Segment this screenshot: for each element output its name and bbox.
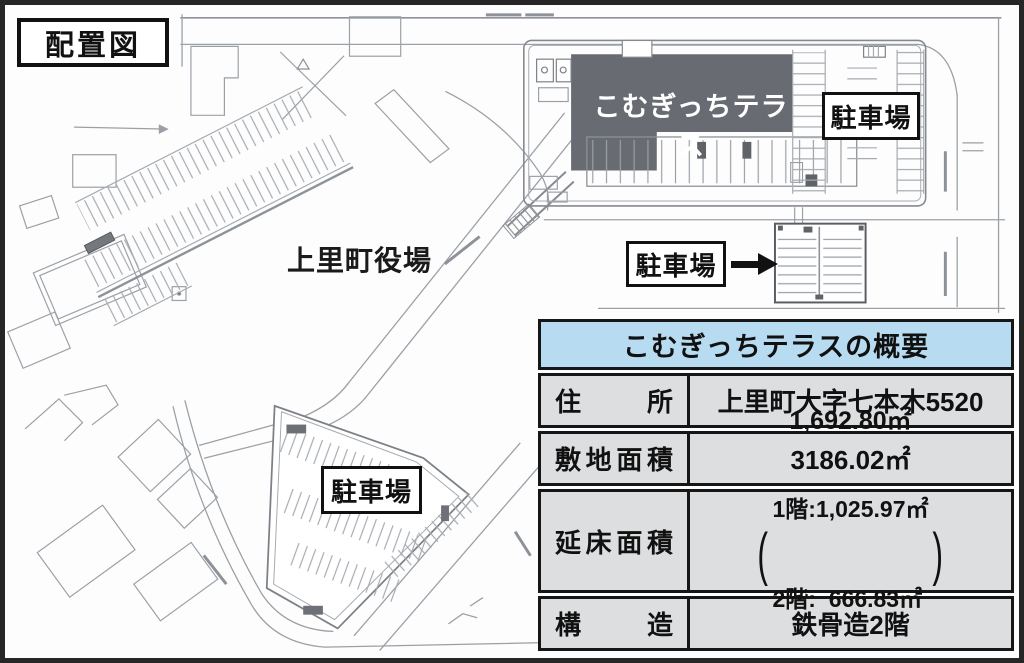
paren-close: ) xyxy=(933,530,944,579)
table-row-structure: 構 造 鉄骨造2階 xyxy=(538,596,1014,651)
overview-table-title: こむぎっちテラスの概要 xyxy=(538,319,1014,370)
detached-parking-lot xyxy=(775,224,866,303)
parking-label-south: 駐車場 xyxy=(321,466,422,514)
floor1-area: 1階:1,025.97㎡ xyxy=(773,495,929,525)
address-label-cell: 住 所 xyxy=(541,376,690,425)
table-row-floor-area: 延床面積 1,692.80㎡ ( 1階:1,025.97㎡ 2階: 666.83… xyxy=(538,489,1014,593)
page-frame: 配置図 こむぎっちテラス 駐車場 上里町役場 駐車場 駐車場 こむぎっちテラスの… xyxy=(0,0,1024,663)
overview-table: こむぎっちテラスの概要 住 所 上里町大字七本木5520 敷地面積 3186.0… xyxy=(538,319,1014,651)
floor-area-total: 1,692.80㎡ xyxy=(789,408,911,436)
parking-label-east: 駐車場 xyxy=(822,92,920,140)
right-arrow-icon xyxy=(731,253,778,275)
south-parking-lot xyxy=(267,406,483,629)
facility-name-label: こむぎっちテラス xyxy=(580,85,802,163)
page-title: 配置図 xyxy=(17,18,169,67)
structure-value-cell: 鉄骨造2階 xyxy=(690,599,1011,648)
floor-area-label-cell: 延床面積 xyxy=(541,492,690,590)
paren-open: ( xyxy=(758,530,769,579)
parking-label-mid: 駐車場 xyxy=(626,241,726,287)
townhall-parking-strip xyxy=(56,84,366,326)
page-title-text: 配置図 xyxy=(45,22,141,64)
town-hall-label: 上里町役場 xyxy=(287,239,432,279)
site-area-label-cell: 敷地面積 xyxy=(541,434,690,483)
floor-area-value-cell: 1,692.80㎡ ( 1階:1,025.97㎡ 2階: 666.83㎡ ) xyxy=(690,492,1011,590)
structure-label-cell: 構 造 xyxy=(541,599,690,648)
table-row-address: 住 所 上里町大字七本木5520 xyxy=(538,373,1014,428)
